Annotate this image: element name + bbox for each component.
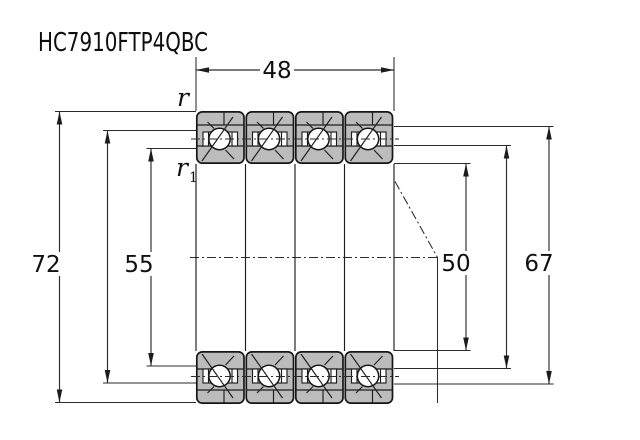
dim-67: 67 bbox=[394, 127, 554, 385]
bearing-technical-drawing: HC7910FTP4QBC 48 bbox=[0, 0, 640, 440]
bearing-drawing-page: HC7910FTP4QBC 48 bbox=[0, 0, 640, 440]
dim-width-48: 48 bbox=[196, 57, 394, 111]
bearing-unit bbox=[197, 352, 244, 403]
dim-label-48: 48 bbox=[262, 58, 291, 84]
bearing-unit bbox=[345, 352, 392, 403]
page-title: HC7910FTP4QBC bbox=[38, 28, 208, 58]
dim-label-55: 55 bbox=[124, 252, 153, 278]
bearing-unit bbox=[246, 112, 293, 163]
dim-od-72: 72 bbox=[31, 112, 196, 403]
chamfer-labels: r r 1 bbox=[176, 83, 198, 186]
dim-label-72: 72 bbox=[31, 252, 60, 278]
chamfer-label-r1-base: r bbox=[176, 153, 190, 182]
bearing-unit bbox=[345, 112, 392, 163]
chamfer-label-r1-sub: 1 bbox=[189, 170, 198, 186]
bearing-unit bbox=[197, 112, 244, 163]
chamfer-label-r: r bbox=[177, 83, 191, 112]
dim-label-50: 50 bbox=[441, 251, 470, 277]
bearing-unit bbox=[296, 112, 343, 163]
bearing-unit bbox=[246, 352, 293, 403]
bearing-unit bbox=[296, 352, 343, 403]
dim-label-67: 67 bbox=[524, 251, 553, 277]
